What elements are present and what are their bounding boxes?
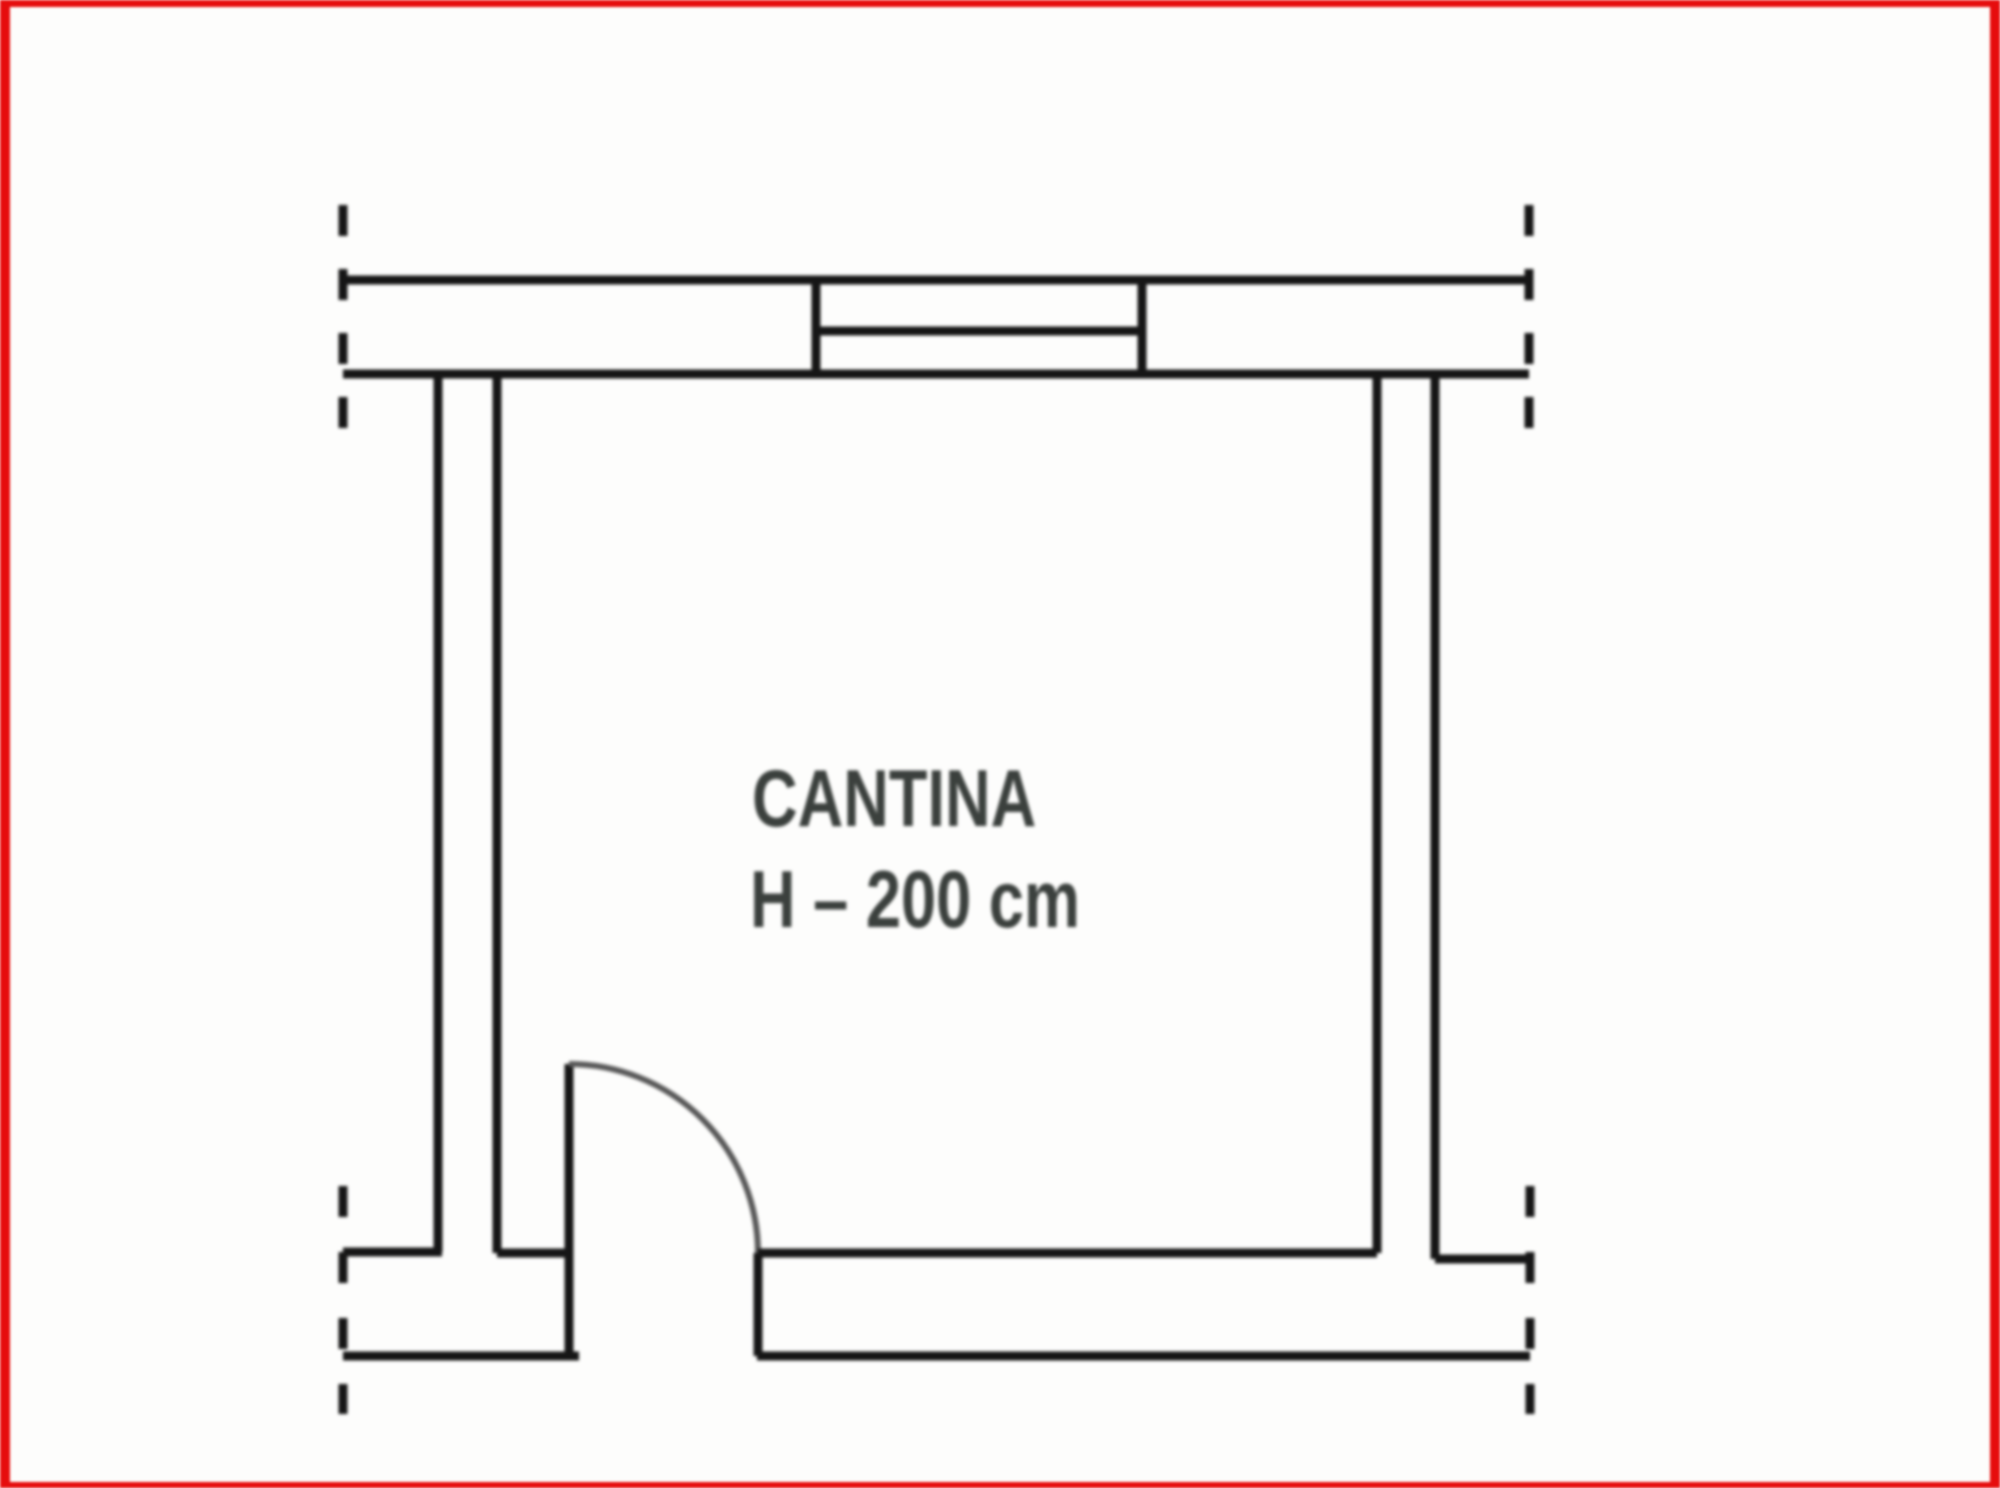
svg-text:H – 200 cm: H – 200 cm: [750, 855, 1080, 945]
svg-text:CANTINA: CANTINA: [752, 754, 1036, 844]
